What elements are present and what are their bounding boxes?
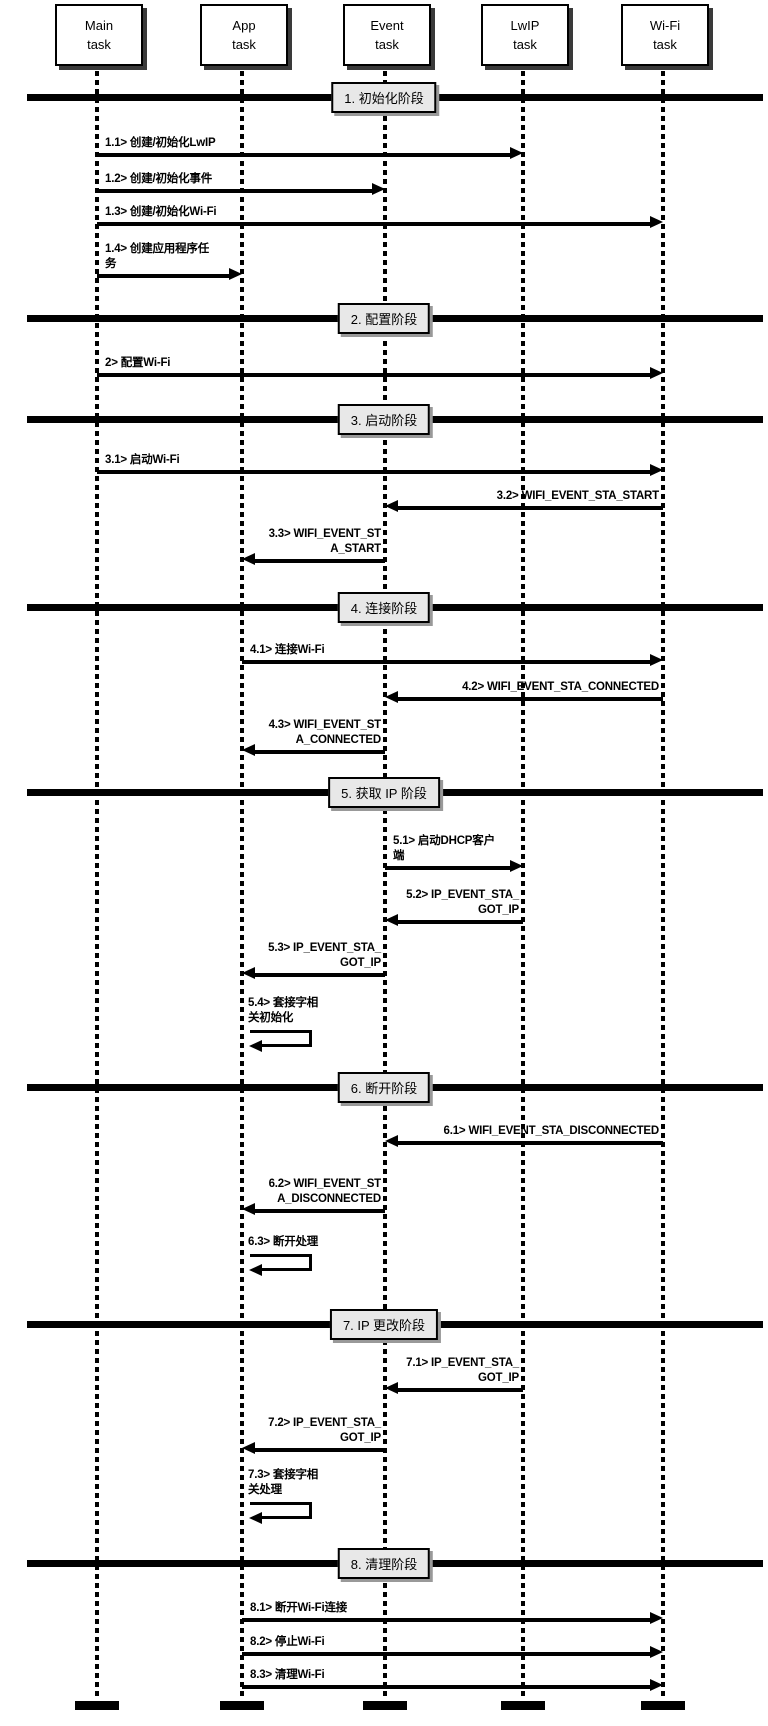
message-arrow-5.1: [385, 866, 511, 870]
lifeline-endcap-app: [220, 1701, 264, 1710]
message-label-line: 4.1> 连接Wi-Fi: [250, 643, 655, 658]
message-arrow-6.1: [397, 1141, 663, 1145]
message-label-line: 2> 配置Wi-Fi: [105, 356, 655, 371]
message-arrow-1.1: [97, 153, 511, 157]
actor-box-main: Main task: [55, 4, 143, 66]
message-label-3.1: 3.1> 启动Wi-Fi: [105, 453, 655, 468]
phase-divider-label-7: 7. IP 更改阶段: [330, 1309, 438, 1340]
phase-divider-label-6: 6. 断开阶段: [338, 1072, 430, 1103]
message-arrow-2: [97, 373, 651, 377]
message-arrow-4.1: [242, 660, 651, 664]
message-arrow-1.4: [97, 274, 230, 278]
message-label-line: A_DISCONNECTED: [248, 1192, 381, 1207]
message-arrow-6.3-top: [250, 1254, 312, 1257]
lifeline-endcap-event: [363, 1701, 407, 1710]
message-arrow-6.3-bottom: [262, 1268, 312, 1271]
message-label-line: 5.2> IP_EVENT_STA_: [391, 888, 519, 903]
phase-divider-label-5: 5. 获取 IP 阶段: [328, 777, 440, 808]
message-label-4.1: 4.1> 连接Wi-Fi: [250, 643, 655, 658]
message-label-line: 1.2> 创建/初始化事件: [105, 172, 377, 187]
message-label-1.4: 1.4> 创建应用程序任务: [105, 242, 234, 272]
message-label-3.3: 3.3> WIFI_EVENT_STA_START: [248, 527, 381, 557]
lifeline-lwip: [521, 62, 525, 1700]
lifeline-app: [240, 62, 244, 1700]
message-arrow-5.4-bottom: [262, 1044, 312, 1047]
actor-box-app: App task: [200, 4, 288, 66]
phase-divider-label-8: 8. 清理阶段: [338, 1548, 430, 1579]
lifeline-endcap-lwip: [501, 1701, 545, 1710]
message-label-7.1: 7.1> IP_EVENT_STA_GOT_IP: [391, 1356, 519, 1386]
message-label-line: GOT_IP: [391, 1371, 519, 1386]
message-arrow-8.3: [242, 1685, 651, 1689]
message-label-5.2: 5.2> IP_EVENT_STA_GOT_IP: [391, 888, 519, 918]
message-label-line: 3.2> WIFI_EVENT_STA_START: [391, 489, 659, 504]
message-arrow-3.1: [97, 470, 651, 474]
message-label-line: 5.1> 启动DHCP客户: [393, 834, 515, 849]
message-arrow-6.2: [254, 1209, 385, 1213]
phase-divider-label-1: 1. 初始化阶段: [331, 82, 436, 113]
message-arrow-8.2: [242, 1652, 651, 1656]
message-label-8.1: 8.1> 断开Wi-Fi连接: [250, 1601, 655, 1616]
message-label-4.3: 4.3> WIFI_EVENT_STA_CONNECTED: [248, 718, 381, 748]
message-label-line: 端: [393, 849, 515, 864]
message-arrow-4.2: [397, 697, 663, 701]
sequence-diagram: 1. 初始化阶段2. 配置阶段3. 启动阶段4. 连接阶段5. 获取 IP 阶段…: [0, 0, 768, 1726]
actor-box-wifi: Wi-Fi task: [621, 4, 709, 66]
message-arrow-3.2: [397, 506, 663, 510]
message-arrow-1.2: [97, 189, 373, 193]
message-label-line: 7.2> IP_EVENT_STA_: [248, 1416, 381, 1431]
message-label-line: GOT_IP: [391, 903, 519, 918]
message-label-7.3: 7.3> 套接字相关处理: [248, 1468, 398, 1498]
message-label-line: 7.3> 套接字相: [248, 1468, 398, 1483]
message-arrow-7.3-bottom: [262, 1516, 312, 1519]
message-label-6.1: 6.1> WIFI_EVENT_STA_DISCONNECTED: [391, 1124, 659, 1139]
message-label-line: 务: [105, 257, 234, 272]
actor-box-lwip: LwIP task: [481, 4, 569, 66]
message-arrow-7.3-top: [250, 1502, 312, 1505]
message-label-8.2: 8.2> 停止Wi-Fi: [250, 1635, 655, 1650]
actor-box-event: Event task: [343, 4, 431, 66]
message-label-line: 关处理: [248, 1483, 398, 1498]
message-label-5.4: 5.4> 套接字相关初始化: [248, 996, 398, 1026]
message-label-4.2: 4.2> WIFI_EVENT_STA_CONNECTED: [391, 680, 659, 695]
message-label-line: A_CONNECTED: [248, 733, 381, 748]
phase-divider-label-4: 4. 连接阶段: [338, 592, 430, 623]
message-arrow-8.1: [242, 1618, 651, 1622]
phase-divider-label-2: 2. 配置阶段: [338, 303, 430, 334]
message-label-line: A_START: [248, 542, 381, 557]
message-label-1.1: 1.1> 创建/初始化LwIP: [105, 136, 515, 151]
message-label-line: 8.3> 清理Wi-Fi: [250, 1668, 655, 1683]
message-label-line: GOT_IP: [248, 956, 381, 971]
message-arrow-7.1: [397, 1388, 523, 1392]
message-label-1.2: 1.2> 创建/初始化事件: [105, 172, 377, 187]
message-arrow-3.3: [254, 559, 385, 563]
message-arrowhead-7.3: [249, 1512, 262, 1524]
message-arrow-1.3: [97, 222, 651, 226]
message-label-7.2: 7.2> IP_EVENT_STA_GOT_IP: [248, 1416, 381, 1446]
lifeline-wifi: [661, 62, 665, 1700]
message-label-3.2: 3.2> WIFI_EVENT_STA_START: [391, 489, 659, 504]
message-arrowhead-5.4: [249, 1040, 262, 1052]
message-arrow-7.2: [254, 1448, 385, 1452]
message-arrow-5.2: [397, 920, 523, 924]
message-label-1.3: 1.3> 创建/初始化Wi-Fi: [105, 205, 655, 220]
message-label-line: 4.2> WIFI_EVENT_STA_CONNECTED: [391, 680, 659, 695]
lifeline-endcap-main: [75, 1701, 119, 1710]
message-label-line: 1.3> 创建/初始化Wi-Fi: [105, 205, 655, 220]
message-label-line: 1.1> 创建/初始化LwIP: [105, 136, 515, 151]
message-label-line: 5.4> 套接字相: [248, 996, 398, 1011]
message-label-5.3: 5.3> IP_EVENT_STA_GOT_IP: [248, 941, 381, 971]
message-label-5.1: 5.1> 启动DHCP客户端: [393, 834, 515, 864]
message-label-line: GOT_IP: [248, 1431, 381, 1446]
message-label-line: 6.2> WIFI_EVENT_ST: [248, 1177, 381, 1192]
message-label-line: 4.3> WIFI_EVENT_ST: [248, 718, 381, 733]
lifeline-endcap-wifi: [641, 1701, 685, 1710]
message-label-line: 1.4> 创建应用程序任: [105, 242, 234, 257]
message-label-2: 2> 配置Wi-Fi: [105, 356, 655, 371]
message-label-line: 8.1> 断开Wi-Fi连接: [250, 1601, 655, 1616]
message-label-8.3: 8.3> 清理Wi-Fi: [250, 1668, 655, 1683]
message-label-line: 7.1> IP_EVENT_STA_: [391, 1356, 519, 1371]
message-arrow-4.3: [254, 750, 385, 754]
message-label-6.3: 6.3> 断开处理: [248, 1235, 398, 1250]
message-label-line: 6.1> WIFI_EVENT_STA_DISCONNECTED: [391, 1124, 659, 1139]
message-arrowhead-6.3: [249, 1264, 262, 1276]
lifeline-main: [95, 62, 99, 1700]
message-label-line: 5.3> IP_EVENT_STA_: [248, 941, 381, 956]
message-label-line: 6.3> 断开处理: [248, 1235, 398, 1250]
message-label-line: 8.2> 停止Wi-Fi: [250, 1635, 655, 1650]
message-label-line: 3.3> WIFI_EVENT_ST: [248, 527, 381, 542]
message-label-line: 3.1> 启动Wi-Fi: [105, 453, 655, 468]
message-arrow-5.3: [254, 973, 385, 977]
message-label-line: 关初始化: [248, 1011, 398, 1026]
message-label-6.2: 6.2> WIFI_EVENT_STA_DISCONNECTED: [248, 1177, 381, 1207]
message-arrow-5.4-top: [250, 1030, 312, 1033]
phase-divider-label-3: 3. 启动阶段: [338, 404, 430, 435]
